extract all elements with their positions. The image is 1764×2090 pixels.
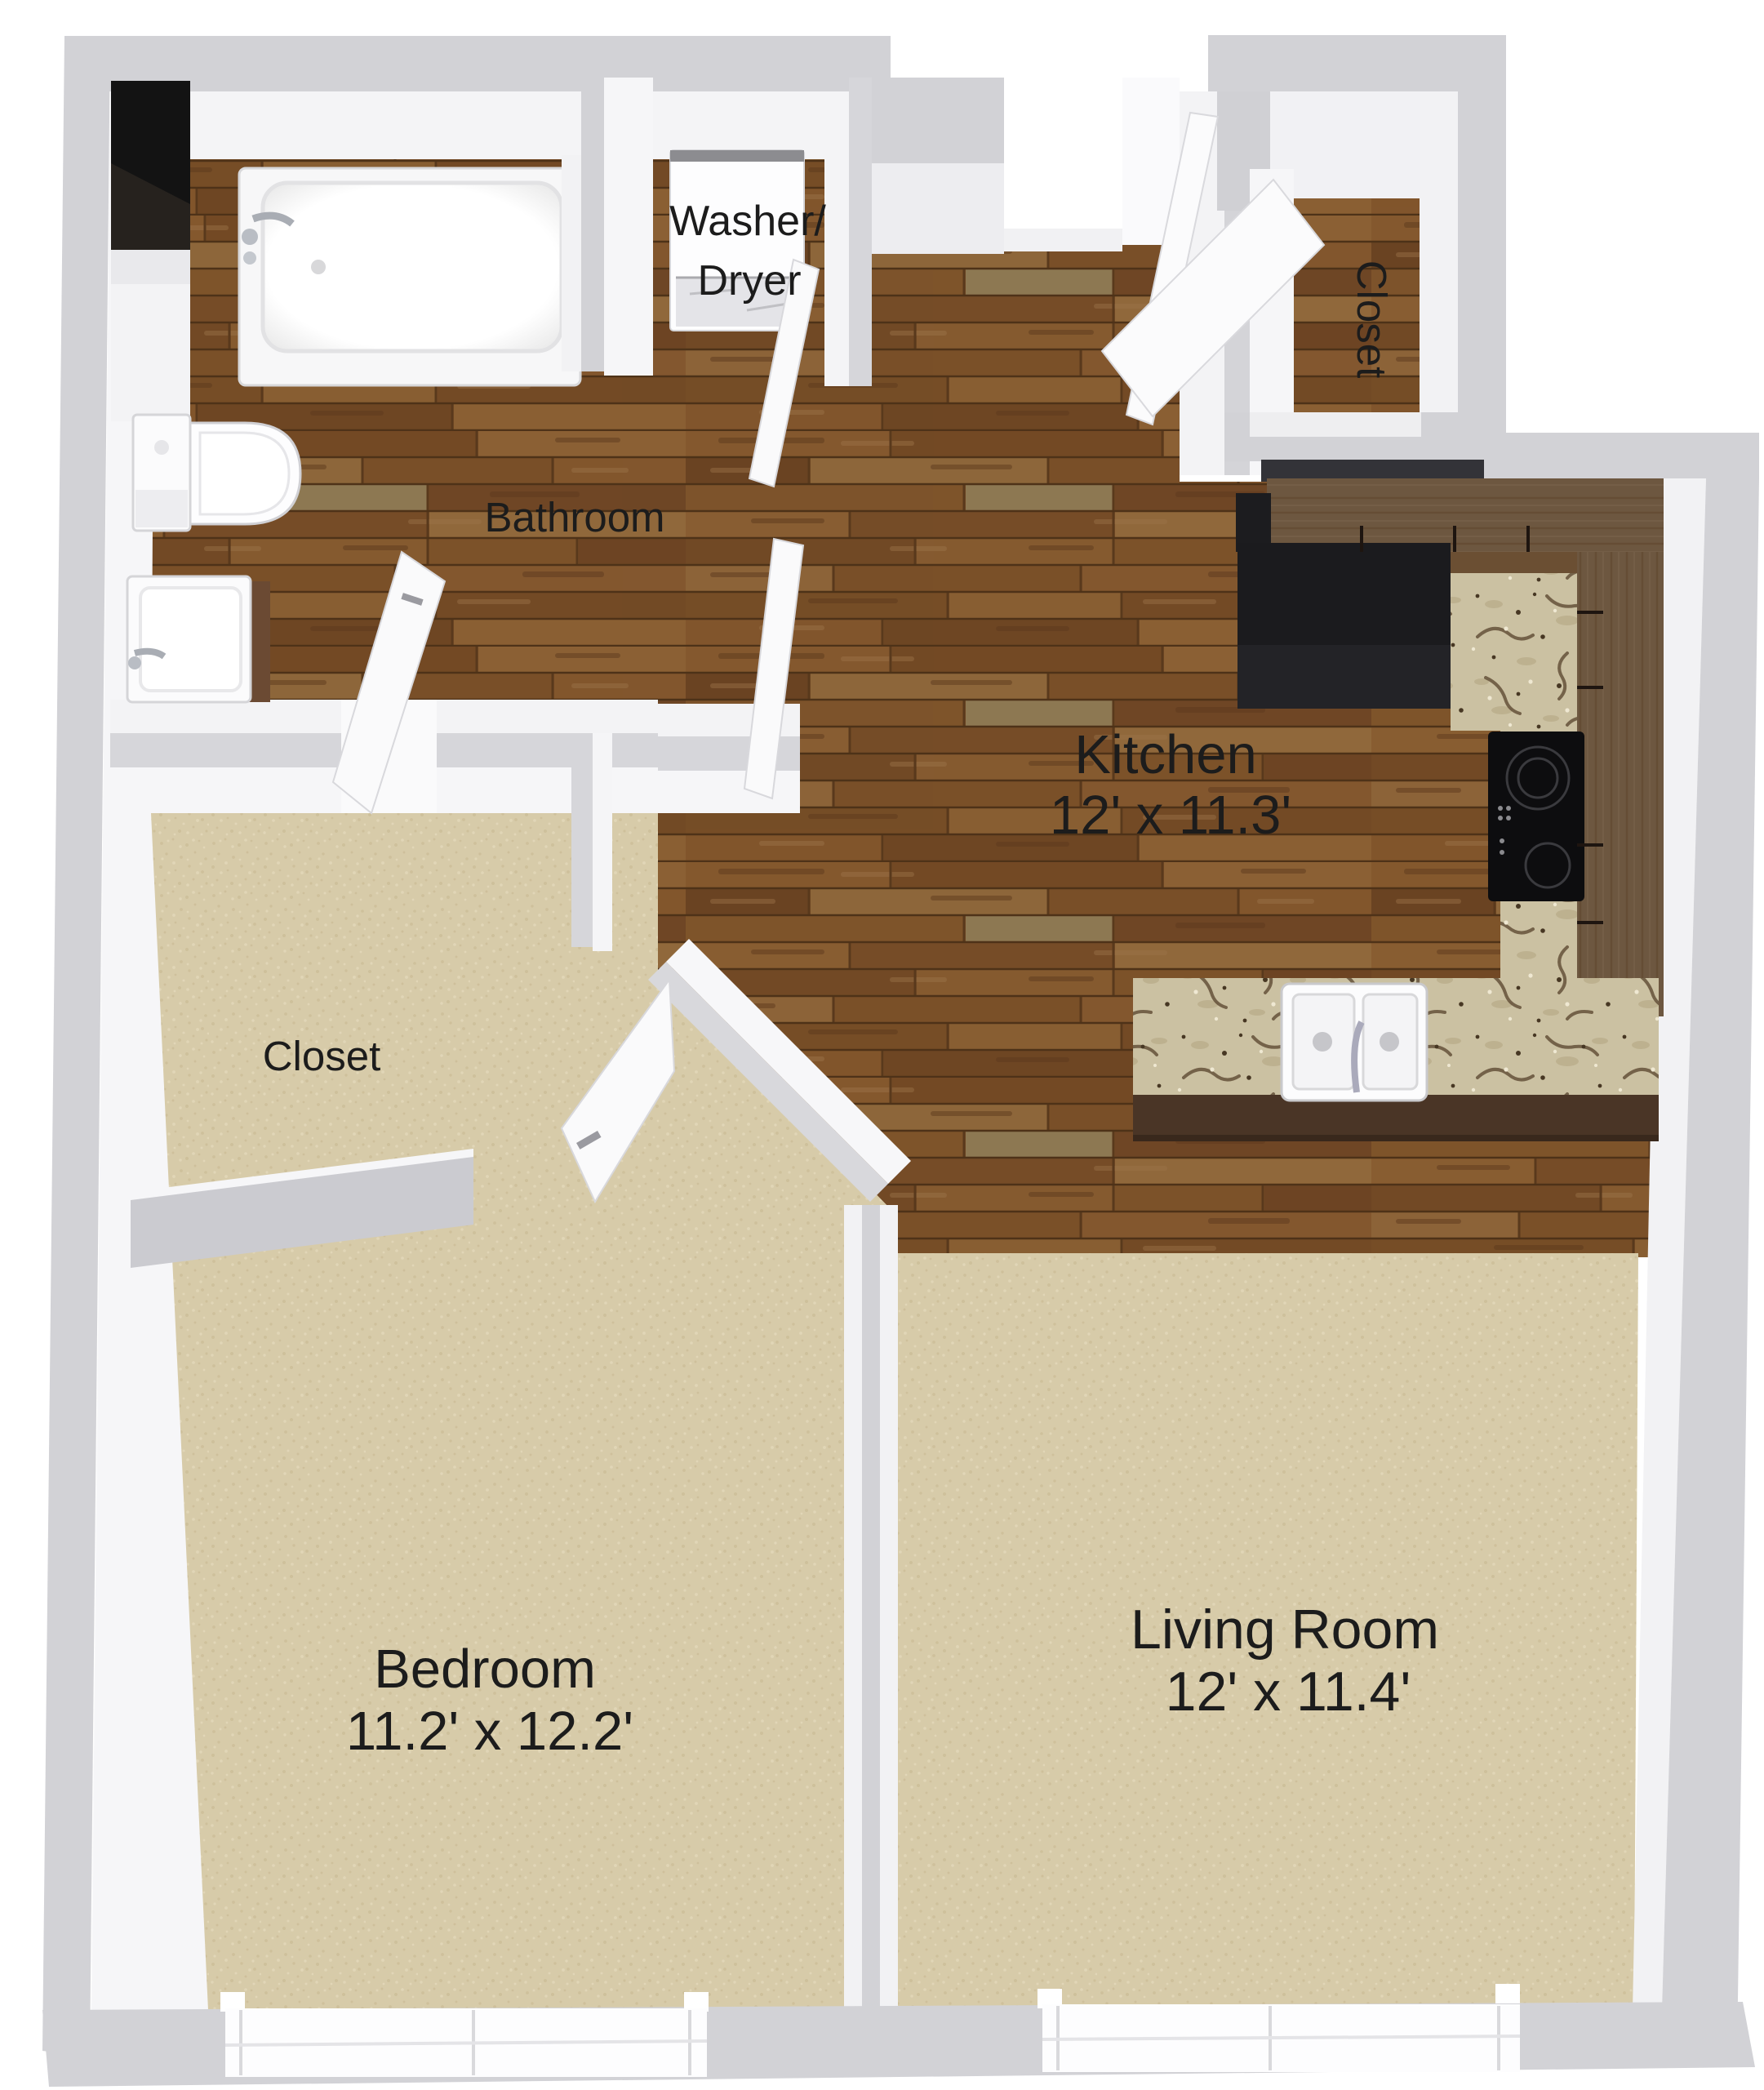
svg-text:Washer/: Washer/ <box>669 198 826 245</box>
svg-text:Living Room: Living Room <box>1131 1599 1439 1661</box>
svg-text:Dryer: Dryer <box>697 257 801 305</box>
svg-text:Bathroom: Bathroom <box>484 494 664 540</box>
svg-text:12' x 11.3': 12' x 11.3' <box>1050 785 1291 846</box>
svg-text:12' x 11.4': 12' x 11.4' <box>1166 1661 1411 1723</box>
svg-text:Closet: Closet <box>1349 260 1395 379</box>
svg-text:Bedroom: Bedroom <box>374 1639 596 1700</box>
svg-text:Closet: Closet <box>263 1033 381 1079</box>
svg-text:Kitchen: Kitchen <box>1074 724 1256 785</box>
svg-text:11.2' x 12.2': 11.2' x 12.2' <box>346 1701 633 1762</box>
